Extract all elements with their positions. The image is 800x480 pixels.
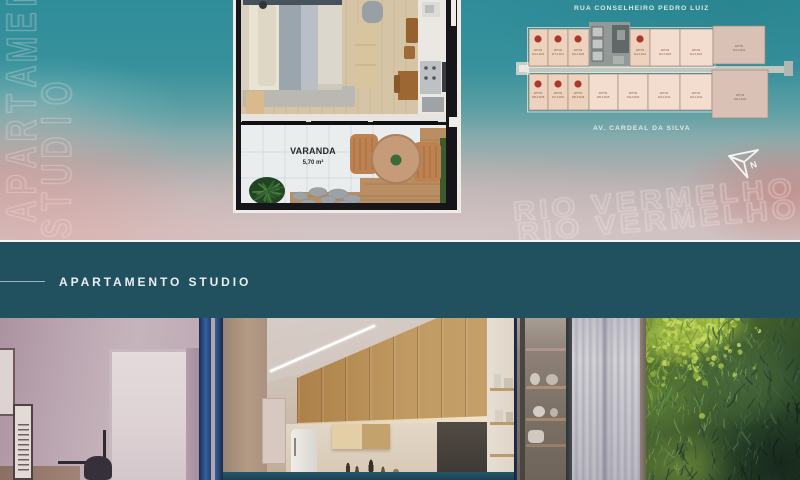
svg-text:APTOS: APTOS: [661, 49, 670, 52]
svg-text:118 A 2118: 118 A 2118: [572, 53, 585, 56]
svg-text:VARANDA: VARANDA: [290, 146, 336, 156]
svg-text:115 A 2115: 115 A 2115: [659, 53, 672, 56]
svg-text:114 A 2114: 114 A 2114: [634, 53, 647, 56]
svg-text:104 A 2104: 104 A 2104: [627, 96, 640, 99]
svg-text:108 A 2108: 108 A 2108: [532, 96, 545, 99]
svg-text:APTOS: APTOS: [554, 49, 563, 52]
svg-text:101 A 2101: 101 A 2101: [733, 49, 746, 52]
svg-text:102 A 2102: 102 A 2102: [690, 96, 703, 99]
svg-text:107 A 2107: 107 A 2107: [552, 96, 565, 99]
svg-text:APTOS: APTOS: [636, 49, 645, 52]
svg-text:117 A 2117: 117 A 2117: [552, 53, 565, 56]
svg-text:APTOS: APTOS: [574, 49, 583, 52]
svg-text:APTOS: APTOS: [692, 92, 701, 95]
svg-text:113 A 2113: 113 A 2113: [690, 53, 703, 56]
svg-text:APTOS: APTOS: [660, 92, 669, 95]
svg-text:APTOS: APTOS: [736, 94, 745, 97]
svg-text:116 A 2116: 116 A 2116: [532, 53, 545, 56]
svg-text:APTOS: APTOS: [534, 92, 543, 95]
svg-text:106 A 2106: 106 A 2106: [572, 96, 585, 99]
svg-text:APTOS: APTOS: [735, 45, 744, 48]
svg-text:APTOS: APTOS: [599, 92, 608, 95]
svg-text:APTOS: APTOS: [554, 92, 563, 95]
svg-text:103 A 2103: 103 A 2103: [658, 96, 671, 99]
svg-text:APTOS: APTOS: [692, 49, 701, 52]
svg-text:5,70 m²: 5,70 m²: [303, 159, 324, 166]
svg-text:APTOS: APTOS: [534, 49, 543, 52]
svg-text:APTOS: APTOS: [629, 92, 638, 95]
svg-text:APTOS: APTOS: [574, 92, 583, 95]
svg-text:102 A 2102: 102 A 2102: [734, 98, 747, 101]
svg-text:105 A 2105: 105 A 2105: [597, 96, 610, 99]
svg-text:N: N: [749, 159, 758, 171]
